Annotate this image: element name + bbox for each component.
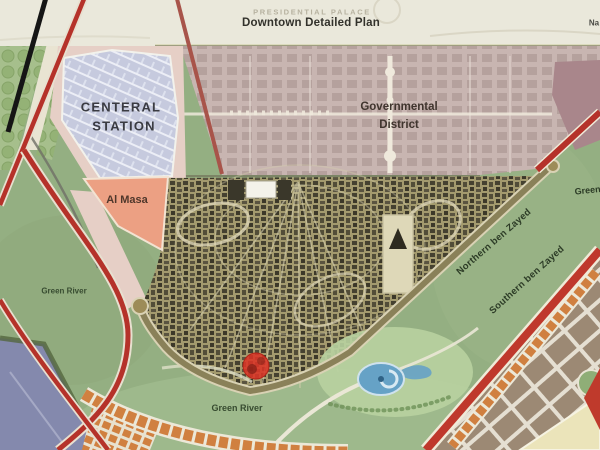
map-canvas (0, 0, 600, 450)
downtown-plan-map[interactable]: PRESIDENTIAL PALACE Downtown Detailed Pl… (0, 0, 600, 450)
convention-hall (246, 181, 276, 198)
convention-block-east (278, 180, 291, 200)
convention-block-west (228, 180, 244, 200)
banner-area (0, 0, 600, 53)
location-marker[interactable] (243, 353, 269, 379)
iconic-tower-plaza (383, 215, 413, 293)
roundabout-west (132, 298, 148, 314)
